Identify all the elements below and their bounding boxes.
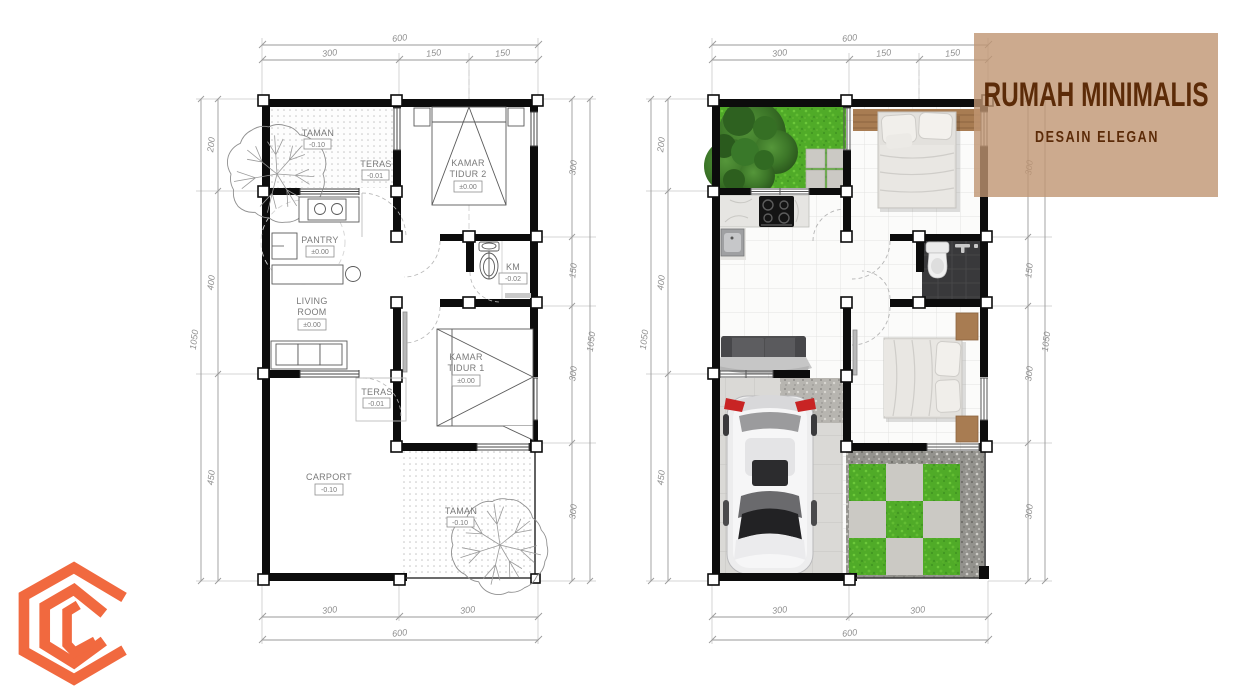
svg-text:1050: 1050 xyxy=(585,331,597,352)
svg-text:RUMAH MINIMALIS: RUMAH MINIMALIS xyxy=(984,76,1209,114)
svg-text:150: 150 xyxy=(876,47,892,59)
svg-text:KM: KM xyxy=(506,262,520,272)
svg-text:600: 600 xyxy=(392,627,408,639)
svg-text:300: 300 xyxy=(772,604,788,616)
svg-text:300: 300 xyxy=(322,604,338,616)
svg-text:ROOM: ROOM xyxy=(297,307,326,317)
svg-text:KAMAR: KAMAR xyxy=(451,158,485,168)
svg-text:200: 200 xyxy=(205,137,217,154)
svg-text:300: 300 xyxy=(460,604,476,616)
svg-text:KAMAR: KAMAR xyxy=(449,352,483,362)
svg-text:300: 300 xyxy=(567,160,579,176)
svg-text:200: 200 xyxy=(655,137,667,154)
svg-text:300: 300 xyxy=(567,504,579,520)
svg-text:300: 300 xyxy=(1023,366,1035,382)
svg-text:LIVING: LIVING xyxy=(296,296,327,306)
svg-text:±0.00: ±0.00 xyxy=(311,249,329,256)
svg-text:-0.01: -0.01 xyxy=(368,401,384,408)
svg-text:600: 600 xyxy=(842,32,858,44)
svg-text:TAMAN: TAMAN xyxy=(302,128,334,138)
svg-text:400: 400 xyxy=(655,275,667,291)
svg-text:150: 150 xyxy=(426,47,442,59)
svg-text:TAMAN: TAMAN xyxy=(445,506,477,516)
svg-text:CARPORT: CARPORT xyxy=(306,472,352,482)
svg-text:150: 150 xyxy=(1023,263,1035,279)
svg-text:TIDUR 2: TIDUR 2 xyxy=(449,169,486,179)
svg-text:-0.10: -0.10 xyxy=(452,520,468,527)
svg-text:600: 600 xyxy=(842,627,858,639)
svg-text:-0.01: -0.01 xyxy=(367,173,383,180)
svg-text:-0.02: -0.02 xyxy=(505,276,521,283)
svg-text:150: 150 xyxy=(495,47,511,59)
svg-text:300: 300 xyxy=(910,604,926,616)
svg-text:300: 300 xyxy=(1023,504,1035,520)
svg-text:1050: 1050 xyxy=(188,329,200,350)
svg-text:1050: 1050 xyxy=(638,329,650,350)
svg-text:450: 450 xyxy=(655,470,667,486)
svg-text:TIDUR 1: TIDUR 1 xyxy=(447,363,484,373)
svg-text:600: 600 xyxy=(392,32,408,44)
svg-text:TERAS: TERAS xyxy=(360,159,392,169)
svg-text:-0.10: -0.10 xyxy=(321,487,337,494)
svg-text:150: 150 xyxy=(945,47,961,59)
svg-text:±0.00: ±0.00 xyxy=(459,184,477,191)
svg-text:450: 450 xyxy=(205,470,217,486)
svg-text:300: 300 xyxy=(322,47,338,59)
svg-text:300: 300 xyxy=(772,47,788,59)
svg-text:400: 400 xyxy=(205,275,217,291)
svg-text:150: 150 xyxy=(567,263,579,279)
svg-text:-0.10: -0.10 xyxy=(309,142,325,149)
svg-text:300: 300 xyxy=(567,366,579,382)
svg-text:±0.00: ±0.00 xyxy=(303,322,321,329)
svg-text:±0.00: ±0.00 xyxy=(457,378,475,385)
svg-text:TERAS: TERAS xyxy=(361,387,393,397)
svg-text:PANTRY: PANTRY xyxy=(301,235,338,245)
svg-text:1050: 1050 xyxy=(1040,331,1052,352)
svg-text:DESAIN ELEGAN: DESAIN ELEGAN xyxy=(1035,129,1159,146)
